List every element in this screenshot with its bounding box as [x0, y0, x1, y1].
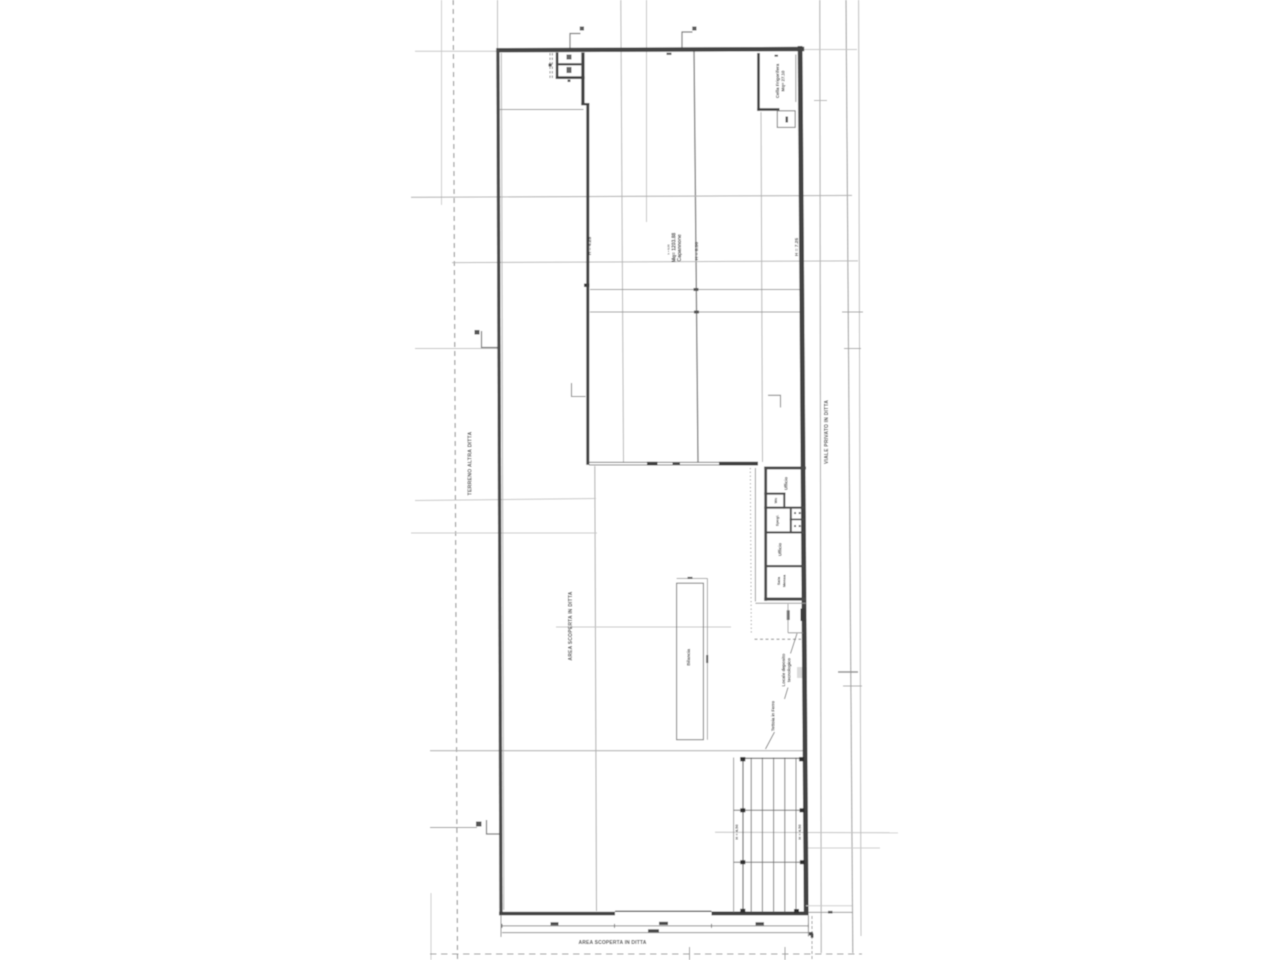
svg-text:H = 8.50: H = 8.50 — [694, 242, 700, 261]
svg-text:H = 4.50: H = 4.50 — [797, 824, 802, 840]
svg-text:Ufficio: Ufficio — [784, 477, 789, 490]
svg-text:Locale deposito: Locale deposito — [781, 653, 786, 686]
svg-text:Capannone: Capannone — [677, 234, 683, 261]
svg-text:Tettoia in Ferro: Tettoia in Ferro — [771, 700, 776, 731]
svg-text:Sala: Sala — [776, 576, 781, 585]
svg-text:Spogl.: Spogl. — [776, 515, 780, 527]
svg-text:AREA SCOPERTA IN DITTA: AREA SCOPERTA IN DITTA — [578, 940, 646, 946]
svg-text:AREA SCOPERTA IN DITTA: AREA SCOPERTA IN DITTA — [568, 591, 574, 660]
svg-text:TERRENO ALTRA DITTA: TERRENO ALTRA DITTA — [467, 431, 473, 495]
svg-text:H = 4.25: H = 4.25 — [587, 237, 593, 256]
svg-text:Ufficio: Ufficio — [778, 543, 783, 556]
svg-text:Mensa: Mensa — [782, 574, 787, 587]
svg-text:Bilancia: Bilancia — [686, 648, 691, 665]
svg-text:h = 6.00: h = 6.00 — [667, 244, 671, 255]
svg-text:VIALE PRIVATO IN DITTA: VIALE PRIVATO IN DITTA — [824, 400, 830, 464]
svg-text:tecnologico: tecnologico — [787, 658, 792, 682]
svg-text:Wc: Wc — [774, 498, 778, 504]
svg-text:H = 7.25: H = 7.25 — [794, 238, 800, 257]
svg-text:H = 4.50: H = 4.50 — [734, 824, 739, 840]
svg-text:Cella Frigorifera: Cella Frigorifera — [775, 63, 780, 98]
svg-text:Mq= 27.10: Mq= 27.10 — [781, 70, 786, 91]
